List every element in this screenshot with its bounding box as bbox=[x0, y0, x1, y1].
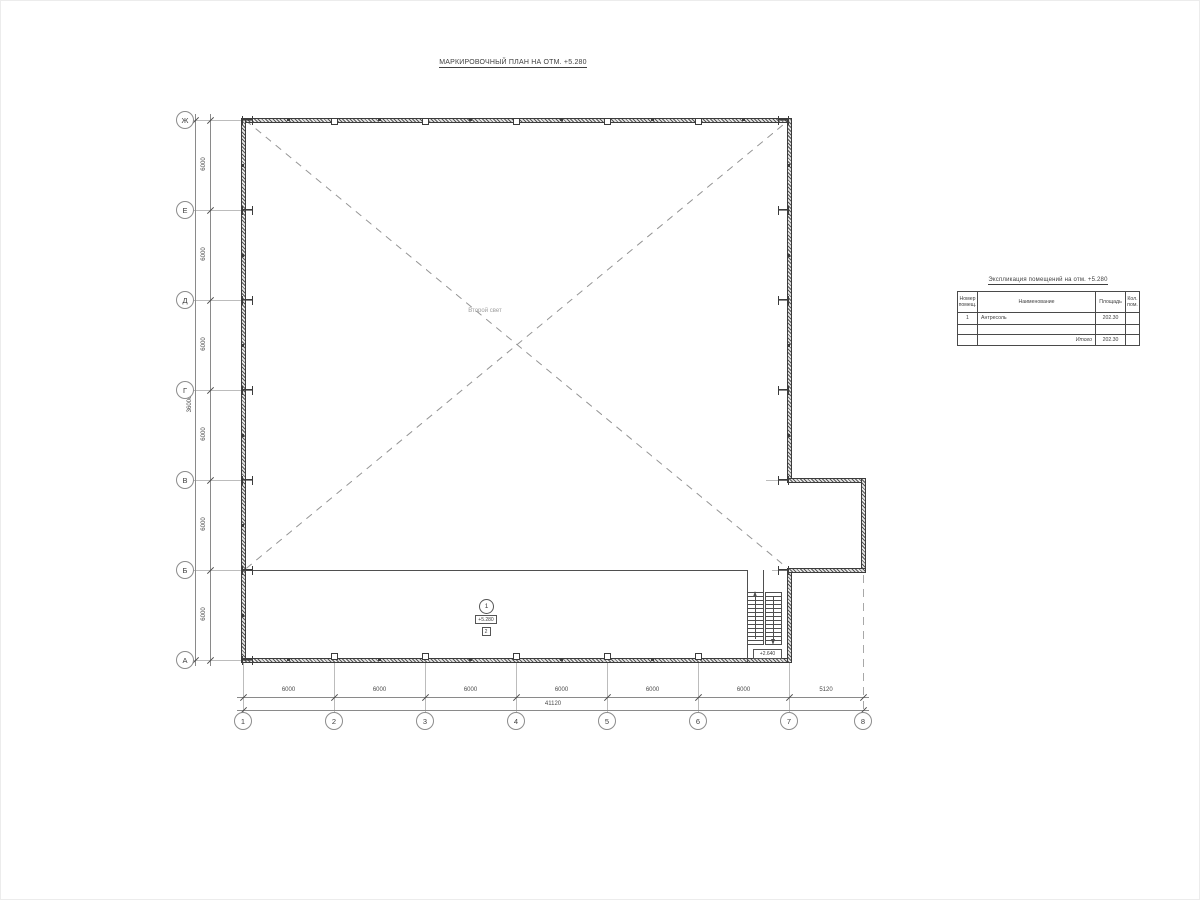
spec-table-row: 1 Антресоль 202.30 bbox=[958, 313, 1140, 325]
dim-label: 6000 bbox=[456, 687, 486, 693]
axis-bubble-col: 3 bbox=[416, 712, 434, 730]
spec-header-cell: Наименование bbox=[978, 292, 1096, 313]
dim-total-label: 41120 bbox=[538, 701, 568, 707]
axis-line-row bbox=[193, 570, 243, 571]
mezzanine-edge-line bbox=[243, 570, 747, 572]
column-ibeam bbox=[242, 206, 253, 215]
axis-line-col bbox=[425, 663, 426, 712]
axis-line-row bbox=[193, 390, 243, 391]
spec-cell-total-value: 202.30 bbox=[1096, 335, 1126, 346]
spec-cell: Антресоль bbox=[978, 313, 1096, 325]
wall-dot bbox=[788, 434, 791, 437]
axis-bubble-col: 8 bbox=[854, 712, 872, 730]
void-label: Второй свет bbox=[450, 308, 520, 314]
dim-label: 6000 bbox=[201, 149, 207, 179]
column-ibeam bbox=[778, 206, 789, 215]
spec-cell bbox=[1096, 325, 1126, 335]
axis-bubble-col: 1 bbox=[234, 712, 252, 730]
wall-dot bbox=[788, 344, 791, 347]
dim-line-row-total bbox=[195, 114, 196, 666]
axis-bubble-row: Б bbox=[176, 561, 194, 579]
dim-label: 6000 bbox=[365, 687, 395, 693]
column-ibeam bbox=[242, 296, 253, 305]
column-square bbox=[513, 653, 520, 660]
column-ibeam bbox=[778, 476, 789, 485]
axis-bubble-col: 4 bbox=[507, 712, 525, 730]
spec-header-cell: Номер помещ. bbox=[958, 292, 978, 313]
spec-header-cell: Площадь bbox=[1096, 292, 1126, 313]
spec-cell bbox=[958, 325, 978, 335]
wall-dot bbox=[651, 119, 654, 122]
wall-dot bbox=[469, 119, 472, 122]
column-square bbox=[695, 118, 702, 125]
dim-label: 6000 bbox=[201, 509, 207, 539]
column-ibeam bbox=[242, 566, 253, 575]
column-square bbox=[604, 653, 611, 660]
spec-table-title: Экспликация помещений на отм. +5.280 bbox=[957, 268, 1139, 286]
column-ibeam bbox=[778, 296, 789, 305]
spec-table-row bbox=[958, 325, 1140, 335]
spec-cell bbox=[1126, 313, 1140, 325]
dim-label: 6000 bbox=[201, 329, 207, 359]
spec-header-cell: Кол. пом. bbox=[1126, 292, 1140, 313]
axis-line-row bbox=[193, 120, 243, 121]
stair-stringer bbox=[781, 592, 782, 645]
column-square bbox=[331, 653, 338, 660]
spec-table-total-row: Итого 202.30 bbox=[958, 335, 1140, 346]
drawing-title: МАРКИРОВОЧНЫЙ ПЛАН НА ОТМ. +5.280 bbox=[383, 51, 643, 69]
dim-line-col-total bbox=[237, 710, 869, 711]
column-ibeam bbox=[242, 656, 253, 665]
axis-line-col-8 bbox=[863, 575, 864, 712]
column-square bbox=[422, 653, 429, 660]
spec-table-block: Экспликация помещений на отм. +5.280 Ном… bbox=[957, 268, 1139, 346]
axis-line-row bbox=[193, 480, 243, 481]
column-ibeam bbox=[778, 116, 789, 125]
dim-label: 6000 bbox=[547, 687, 577, 693]
axis-bubble-col: 7 bbox=[780, 712, 798, 730]
wall-dot bbox=[242, 524, 245, 527]
floor-type-mark: 2 bbox=[482, 627, 491, 636]
stair-direction-line bbox=[773, 596, 774, 639]
axis-bubble-col: 6 bbox=[689, 712, 707, 730]
column-square bbox=[331, 118, 338, 125]
axis-line-row bbox=[193, 660, 243, 661]
wall-dot bbox=[469, 659, 472, 662]
axis-bubble-row: Д bbox=[176, 291, 194, 309]
axis-line-col bbox=[789, 663, 790, 712]
wall-annex-right bbox=[861, 478, 866, 573]
column-square bbox=[695, 653, 702, 660]
dim-label: 6000 bbox=[201, 419, 207, 449]
wall-dot bbox=[742, 119, 745, 122]
wall-dot bbox=[242, 344, 245, 347]
wall-annex-bottom bbox=[787, 568, 866, 573]
wall-right-lower bbox=[787, 568, 792, 663]
spec-table-title-text: Экспликация помещений на отм. +5.280 bbox=[988, 277, 1107, 285]
dim-label: 6000 bbox=[201, 239, 207, 269]
wall-dot bbox=[651, 659, 654, 662]
axis-line-row bbox=[193, 300, 243, 301]
wall-annex-top bbox=[787, 478, 866, 483]
room-elevation-mark: +5.280 bbox=[475, 615, 497, 624]
wall-dot bbox=[287, 659, 290, 662]
wall-dot bbox=[242, 164, 245, 167]
axis-bubble-row: В bbox=[176, 471, 194, 489]
axis-bubble-row: Г bbox=[176, 381, 194, 399]
spec-cell bbox=[978, 325, 1096, 335]
axis-bubble-col: 2 bbox=[325, 712, 343, 730]
stair-direction-line bbox=[755, 596, 756, 639]
dim-label: 6000 bbox=[274, 687, 304, 693]
stair-level-mark: +2.640 bbox=[753, 649, 782, 659]
dim-label: 5120 bbox=[811, 687, 841, 693]
axis-bubble-row: Ж bbox=[176, 111, 194, 129]
axis-bubble-row: А bbox=[176, 651, 194, 669]
wall-dot bbox=[560, 659, 563, 662]
axis-line-col bbox=[243, 663, 244, 712]
wall-dot bbox=[287, 119, 290, 122]
column-square bbox=[422, 118, 429, 125]
column-ibeam bbox=[242, 476, 253, 485]
axis-bubble-row: Е bbox=[176, 201, 194, 219]
stair-up-arrow-icon bbox=[753, 591, 757, 597]
drawing-title-text: МАРКИРОВОЧНЫЙ ПЛАН НА ОТМ. +5.280 bbox=[439, 59, 586, 68]
wall-dot bbox=[378, 659, 381, 662]
column-square bbox=[513, 118, 520, 125]
column-square bbox=[604, 118, 611, 125]
spec-table: Номер помещ. Наименование Площадь Кол. п… bbox=[957, 291, 1140, 346]
axis-line-col bbox=[698, 663, 699, 712]
spec-cell: 1 bbox=[958, 313, 978, 325]
wall-dot bbox=[788, 164, 791, 167]
spec-cell bbox=[958, 335, 978, 346]
stair-landing-divider bbox=[763, 570, 764, 592]
wall-dot bbox=[242, 254, 245, 257]
axis-line-row bbox=[193, 210, 243, 211]
stair-stringer bbox=[763, 592, 764, 645]
axis-line-col bbox=[516, 663, 517, 712]
room-number-bubble: 1 bbox=[479, 599, 494, 614]
axis-line-col bbox=[607, 663, 608, 712]
spec-cell bbox=[1126, 335, 1140, 346]
column-ibeam bbox=[242, 116, 253, 125]
spec-cell-total-label: Итого bbox=[978, 335, 1096, 346]
spec-cell: 202.30 bbox=[1096, 313, 1126, 325]
axis-line-col bbox=[334, 663, 335, 712]
axis-bubble-col: 5 bbox=[598, 712, 616, 730]
wall-dot bbox=[378, 119, 381, 122]
wall-dot bbox=[242, 434, 245, 437]
wall-dot bbox=[242, 614, 245, 617]
dim-label: 6000 bbox=[201, 599, 207, 629]
spec-table-header-row: Номер помещ. Наименование Площадь Кол. п… bbox=[958, 292, 1140, 313]
stair-down-arrow-icon bbox=[771, 639, 775, 645]
column-ibeam bbox=[778, 566, 789, 575]
wall-dot bbox=[788, 254, 791, 257]
spec-cell bbox=[1126, 325, 1140, 335]
wall-dot bbox=[560, 119, 563, 122]
column-ibeam bbox=[778, 386, 789, 395]
stair-stringer bbox=[765, 592, 766, 645]
dim-label: 6000 bbox=[638, 687, 668, 693]
column-ibeam bbox=[242, 386, 253, 395]
drawing-sheet: МАРКИРОВОЧНЫЙ ПЛАН НА ОТМ. +5.280 6000 6… bbox=[0, 0, 1200, 900]
dim-label: 6000 bbox=[729, 687, 759, 693]
